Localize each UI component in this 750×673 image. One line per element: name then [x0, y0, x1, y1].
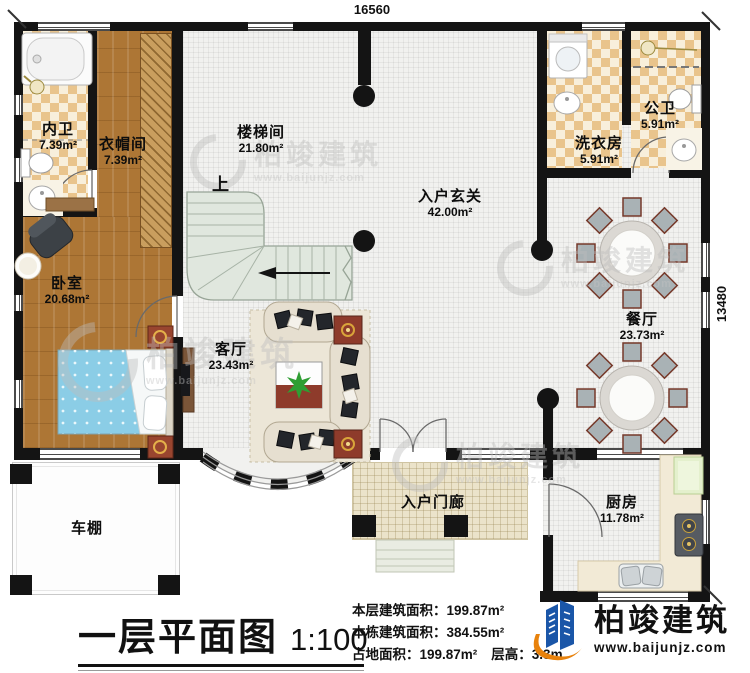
window	[701, 292, 710, 328]
room-label-foyer: 入户玄关42.00m²	[400, 189, 500, 219]
floorplan-canvas: 柏竣建筑 www.baijunjz.com 柏竣建筑 www.baijunjz.…	[0, 0, 750, 673]
watermark-url: www.baijunjz.com	[456, 474, 584, 486]
window	[701, 243, 710, 277]
watermark-text: 柏竣建筑	[456, 441, 584, 472]
room-label-dining: 餐厅23.73m²	[602, 312, 682, 342]
window	[14, 95, 23, 115]
watermark: 柏竣建筑 www.baijunjz.com	[392, 436, 584, 492]
floor-master-bath	[23, 31, 88, 208]
wall-porch-left	[352, 448, 380, 460]
wall-cloak-right-upper	[172, 22, 183, 296]
room-label-bedroom: 卧室20.68m²	[27, 276, 107, 306]
title-underline	[78, 664, 364, 667]
stairs-up-label: 上	[212, 170, 229, 195]
drawing-title: 一层平面图1:100	[78, 606, 364, 661]
window	[38, 22, 110, 31]
window	[14, 380, 23, 408]
wall-living-bottom-left	[183, 448, 205, 460]
watermark-url: www.baijunjz.com	[254, 172, 382, 184]
room-label-living: 客厅23.43m²	[191, 342, 271, 372]
wall-kitchen-left-lower	[543, 535, 553, 601]
room-label-laundry: 洗衣房5.91m²	[559, 136, 639, 166]
carport-pillar	[10, 575, 32, 595]
wall-bath-bottom	[14, 208, 97, 217]
dimension-right: 13480	[714, 266, 729, 342]
window	[14, 295, 23, 311]
dimension-top: 16560	[332, 2, 412, 17]
brand-logo-icon	[526, 596, 588, 664]
wall-laundry-left	[537, 22, 547, 242]
watermark-url: www.baijunjz.com	[561, 278, 689, 290]
wall-public-bath-bottom	[669, 168, 710, 178]
carport-pillar	[158, 464, 180, 484]
porch-steps	[376, 540, 454, 572]
watermark-text: 柏竣建筑	[561, 245, 689, 276]
watermark-logo-icon	[381, 425, 460, 504]
watermark: 柏竣建筑 www.baijunjz.com	[497, 240, 689, 296]
porch-pillar	[352, 515, 376, 537]
room-label-porch: 入户门廊	[383, 495, 483, 512]
bay-window	[203, 448, 353, 490]
room-label-master-bath: 内卫7.39m²	[23, 122, 93, 152]
window	[701, 500, 710, 544]
window-kitchen-passthrough	[597, 448, 683, 460]
watermark-url: www.baijunjz.com	[146, 375, 298, 387]
drawing-title-block: 一层平面图1:100	[78, 606, 364, 671]
window	[40, 448, 140, 460]
room-label-carport: 车棚	[47, 521, 127, 538]
title-underline-thin	[78, 670, 364, 671]
drawing-title-text: 一层平面图	[78, 617, 278, 659]
carport-pillar	[10, 464, 32, 484]
room-label-kitchen: 厨房11.78m²	[582, 495, 662, 525]
watermark-logo-icon	[42, 306, 155, 419]
carport-pillar	[158, 575, 180, 595]
wall-kitchen-top-right	[683, 448, 701, 460]
wall-stair-stub	[358, 22, 371, 85]
wall-laundry-bottom	[547, 168, 631, 178]
window	[248, 22, 293, 31]
room-label-stairwell: 楼梯间21.80m²	[216, 125, 306, 155]
brand-block: 柏竣建筑 www.baijunjz.com	[526, 596, 730, 664]
room-label-cloakroom: 衣帽间7.39m²	[87, 137, 159, 167]
room-label-public-bath: 公卫5.91m²	[620, 101, 700, 131]
window	[582, 22, 625, 31]
window	[14, 158, 23, 182]
porch-pillar	[444, 515, 468, 537]
watermark-logo-icon	[486, 229, 565, 308]
brand-site: www.baijunjz.com	[594, 640, 730, 655]
brand-name: 柏竣建筑	[594, 605, 730, 638]
